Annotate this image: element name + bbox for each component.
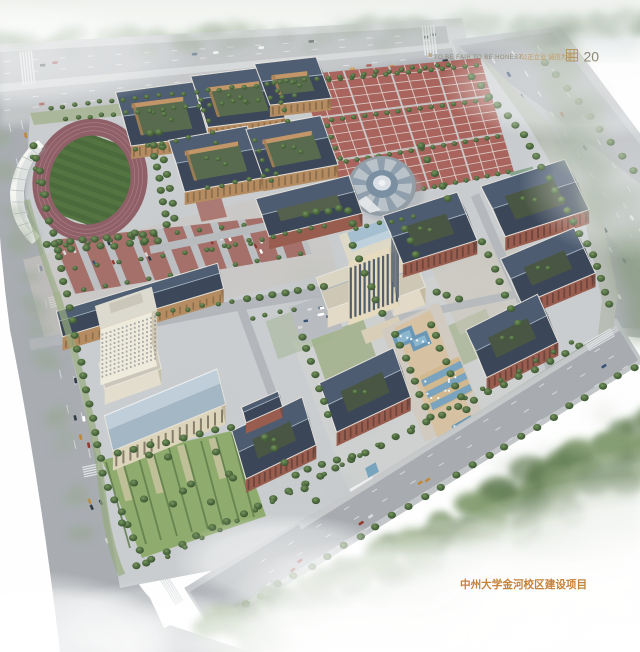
svg-text:TO BE FAIR TO BE HONEST: TO BE FAIR TO BE HONEST <box>434 55 523 61</box>
svg-text:/公正立业 诚信为怀: /公正立业 诚信为怀 <box>519 52 574 61</box>
svg-text:20: 20 <box>584 49 600 65</box>
svg-text:中州大学金河校区建设项目: 中州大学金河校区建设项目 <box>460 578 587 591</box>
